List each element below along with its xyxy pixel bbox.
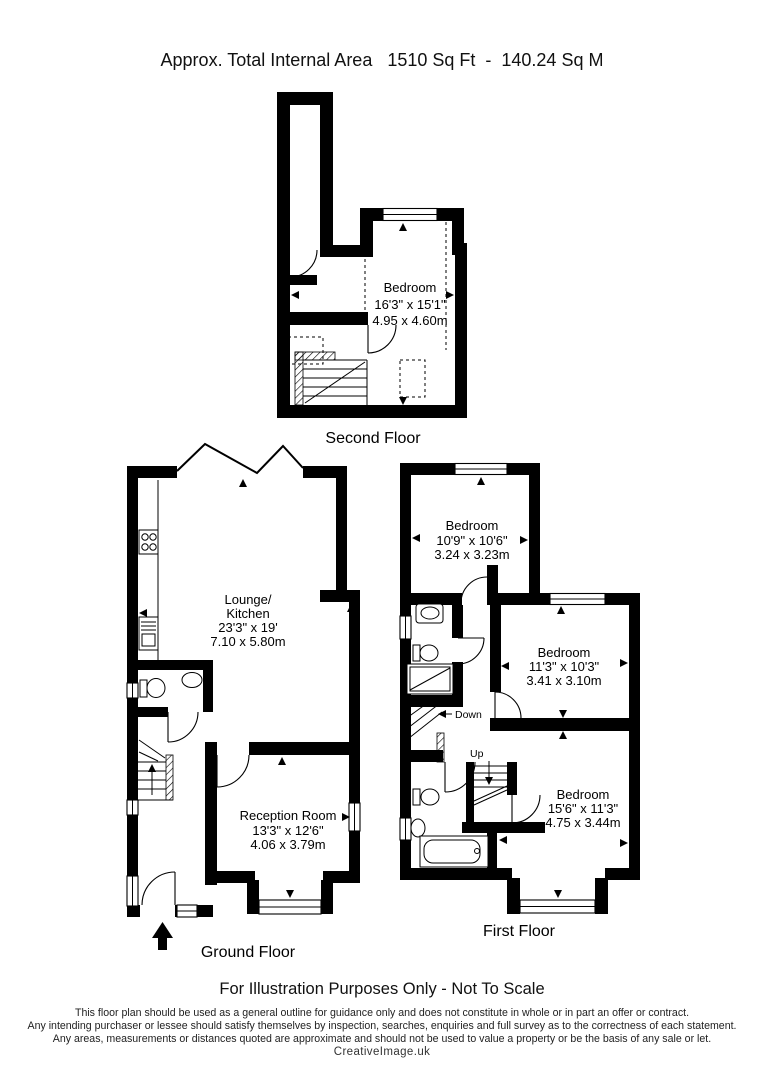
basin-icon xyxy=(411,819,425,837)
stair-down-label: Down xyxy=(455,709,482,721)
room-label-kitchen: Kitchen xyxy=(226,606,269,621)
open-boundary-zigzag xyxy=(177,444,303,473)
staircase-up xyxy=(474,761,507,805)
floorplan-page: Approx. Total Internal Area 1510 Sq Ft -… xyxy=(0,0,764,1080)
entrance-arrow-icon xyxy=(152,922,173,950)
room-dim-metric: 4.06 x 3.79m xyxy=(250,837,325,852)
floor-label-first: First Floor xyxy=(483,923,556,940)
room-dim-imperial: 15'6" x 11'3" xyxy=(548,801,619,816)
floor-label-second: Second Floor xyxy=(325,430,421,447)
room-dim-metric: 7.10 x 5.80m xyxy=(210,634,285,649)
toilet-icon xyxy=(140,679,165,698)
shower-icon xyxy=(407,664,453,694)
room-label-reception: Reception Room xyxy=(240,808,337,823)
openings xyxy=(140,742,249,917)
floorplan-drawing: Bedroom 16'3" x 15'1" 4.95 x 4.60m Secon… xyxy=(0,0,764,1080)
disclaimer-line: Any intending purchaser or lessee should… xyxy=(0,1020,764,1033)
disclaimer-text: This floor plan should be used as a gene… xyxy=(0,1007,764,1046)
first-floor-plan: Down Up Bedroom 10'9" x 10'6" 3.24 x 3.2… xyxy=(400,463,640,940)
second-floor-plan: Bedroom 16'3" x 15'1" 4.95 x 4.60m Secon… xyxy=(277,92,467,447)
hob-icon xyxy=(139,530,158,554)
wc-fixtures xyxy=(140,673,202,698)
room-dim-metric: 3.41 x 3.10m xyxy=(526,673,601,688)
room-dim-imperial: 11'3" x 10'3" xyxy=(529,659,600,674)
ground-floor-plan: Lounge/ Kitchen 23'3" x 19' 7.10 x 5.80m… xyxy=(127,444,360,961)
down-arrow-icon xyxy=(438,710,446,718)
room-dim-metric: 4.95 x 4.60m xyxy=(372,313,447,328)
stair-direction-arrow-icon xyxy=(148,764,156,772)
bath-icon xyxy=(420,836,488,867)
staircase xyxy=(138,740,173,800)
not-to-scale-notice: For Illustration Purposes Only - Not To … xyxy=(0,980,764,999)
stair-up-label: Up xyxy=(470,748,484,760)
kitchen-sink-icon xyxy=(139,617,158,650)
room-label-bedroom-second: Bedroom xyxy=(384,280,437,295)
basin-icon xyxy=(421,607,439,619)
room-dim-imperial: 13'3" x 12'6" xyxy=(252,823,324,838)
shower-room-fixtures xyxy=(407,604,453,694)
room-dim-metric: 4.75 x 3.44m xyxy=(545,815,620,830)
room-dim-metric: 3.24 x 3.23m xyxy=(434,547,509,562)
room-label-bedroom-front: Bedroom xyxy=(446,518,499,533)
up-stair-arrow-icon xyxy=(485,777,493,785)
staircase xyxy=(295,352,367,405)
room-label-bedroom-rear: Bedroom xyxy=(557,787,610,802)
room-dim-imperial: 10'9" x 10'6" xyxy=(436,533,508,548)
brand-credit: CreativeImage.uk xyxy=(0,1046,764,1058)
window xyxy=(383,209,437,221)
basin-icon xyxy=(182,673,202,688)
kitchen-units xyxy=(139,480,158,660)
room-dim-imperial: 16'3" x 15'1" xyxy=(374,297,446,312)
disclaimer-line: This floor plan should be used as a gene… xyxy=(0,1007,764,1020)
toilet-icon xyxy=(413,645,438,661)
room-label-bedroom-middle: Bedroom xyxy=(538,645,591,660)
room-label-lounge: Lounge/ xyxy=(225,592,272,607)
toilet-icon xyxy=(413,789,439,805)
disclaimer-line: Any areas, measurements or distances quo… xyxy=(0,1033,764,1046)
floor-label-ground: Ground Floor xyxy=(201,944,296,961)
room-dim-imperial: 23'3" x 19' xyxy=(218,620,277,635)
